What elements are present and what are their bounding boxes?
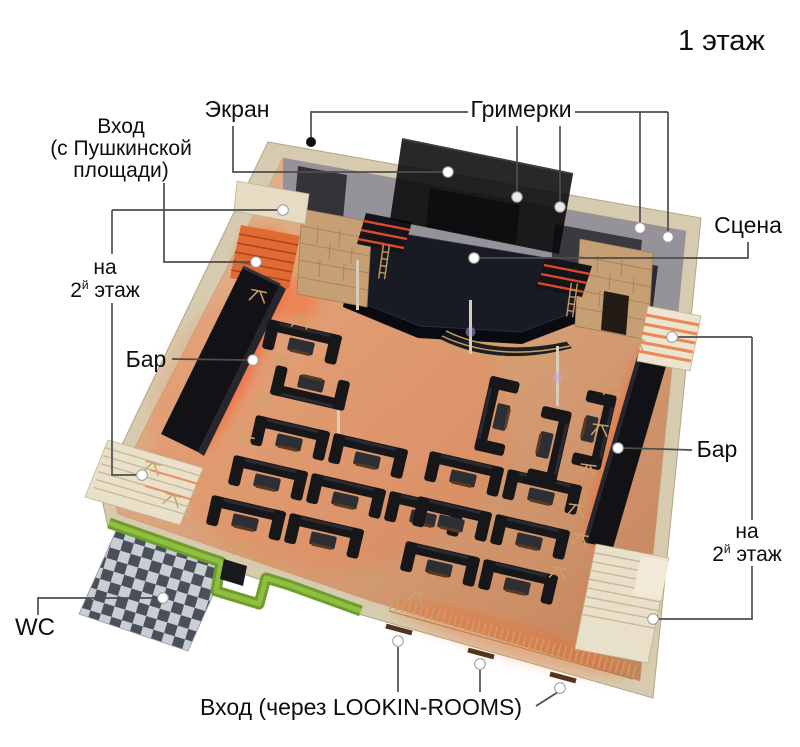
entrance-top-line3: площади) (50, 160, 192, 182)
backstage-door (601, 291, 629, 335)
to-second-floor-word1: на (712, 521, 782, 543)
floor-plan-rendering (0, 0, 800, 747)
callout-bar-left (172, 359, 247, 360)
to-second-floor-word1: на (70, 257, 140, 279)
to-second-floor-left-label: на 2й этаж (70, 257, 140, 302)
dressing-rooms-label: Гримерки (470, 98, 571, 122)
entrance-top-line1: Вход (50, 116, 192, 138)
entrance-bottom-label: Вход (через LOOKIN-ROOMS) (200, 696, 522, 720)
to-second-floor-line2: 2й этаж (712, 543, 782, 566)
entrance-top-line2: (с Пушкинской (50, 138, 192, 160)
floor-plan-canvas: 1 этаж Экран Гримерки Вход (с Пушкинской… (0, 0, 800, 747)
stage-label: Сцена (714, 214, 782, 238)
wc-label: WC (15, 616, 55, 641)
entrance-top-label: Вход (с Пушкинской площади) (50, 116, 192, 181)
to-second-floor-line2: 2й этаж (70, 279, 140, 302)
screen-label: Экран (205, 98, 270, 122)
floor-title: 1 этаж (678, 26, 765, 56)
bar-left-label: Бар (126, 348, 167, 372)
to-second-floor-right-label: на 2й этаж (712, 521, 782, 566)
bar-right-label: Бар (697, 438, 738, 462)
